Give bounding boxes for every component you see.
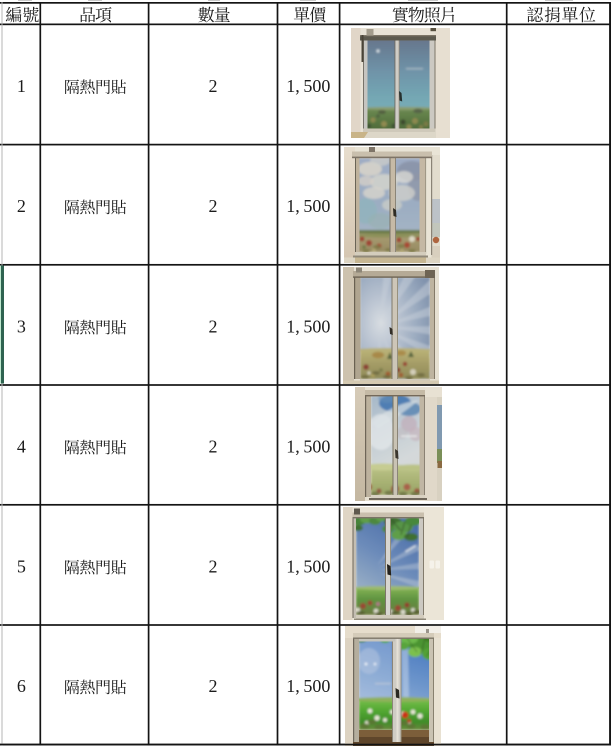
svg-text:1, 500: 1, 500 — [286, 556, 330, 576]
svg-text:2: 2 — [209, 316, 218, 336]
svg-text:2: 2 — [17, 196, 26, 216]
svg-text:1, 500: 1, 500 — [286, 76, 330, 96]
svg-text:2: 2 — [209, 556, 218, 576]
svg-text:2: 2 — [209, 196, 218, 216]
svg-text:2: 2 — [209, 76, 218, 96]
svg-text:1, 500: 1, 500 — [286, 196, 330, 216]
svg-text:4: 4 — [17, 436, 26, 456]
svg-text:2: 2 — [209, 676, 218, 696]
svg-text:1, 500: 1, 500 — [286, 436, 330, 456]
svg-text:1: 1 — [17, 76, 26, 96]
svg-text:1, 500: 1, 500 — [286, 676, 330, 696]
svg-text:2: 2 — [209, 436, 218, 456]
svg-text:6: 6 — [17, 676, 26, 696]
svg-text:3: 3 — [17, 316, 26, 336]
svg-text:5: 5 — [17, 556, 26, 576]
svg-text:1, 500: 1, 500 — [286, 316, 330, 336]
